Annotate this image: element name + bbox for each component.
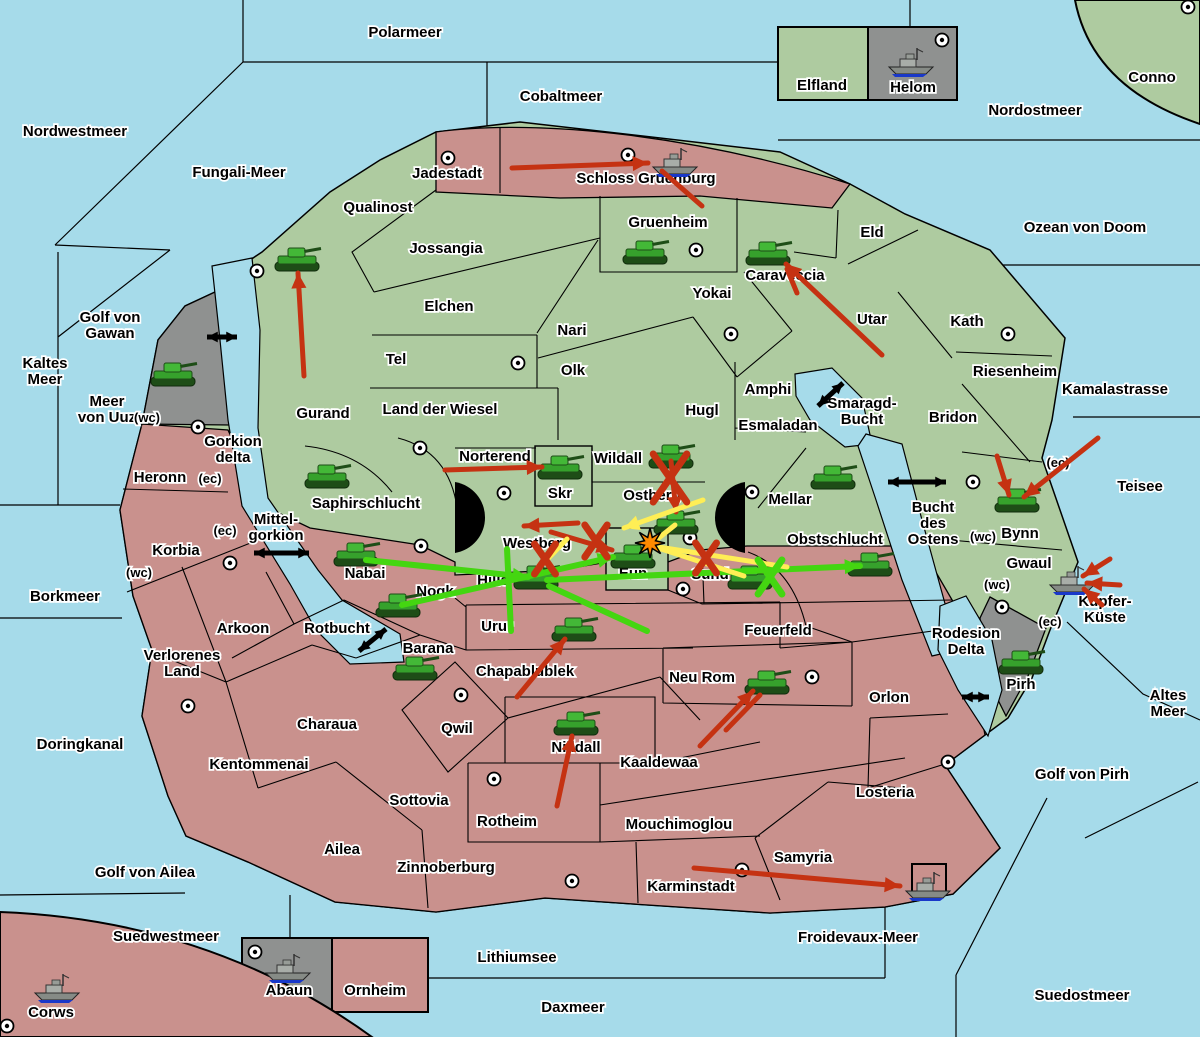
- sea-label-mittel-gorkion: Mittel-gorkion: [249, 511, 304, 544]
- capital-dot: [1182, 1, 1195, 14]
- capital-dot: [806, 671, 819, 684]
- territory-label-abaun[interactable]: Abaun: [266, 982, 313, 999]
- sea-label-kamalastrasse: Kamalastrasse: [1062, 381, 1168, 398]
- territory-label-land-der-wiesel[interactable]: Land der Wiesel: [383, 401, 498, 418]
- capital-dot: [690, 244, 703, 257]
- territory-label-ornheim[interactable]: Ornheim: [344, 982, 406, 999]
- sea-label-rotbucht: Rotbucht: [304, 620, 370, 637]
- territory-label-olk[interactable]: Olk: [561, 362, 586, 379]
- sea-label-fungali-meer: Fungali-Meer: [192, 164, 286, 181]
- sea-label-doringkanal: Doringkanal: [37, 736, 124, 753]
- territory-label-qualinost[interactable]: Qualinost: [343, 199, 412, 216]
- sea-label-polarmeer: Polarmeer: [368, 24, 442, 41]
- territory-label-mouchimoglou[interactable]: Mouchimoglou: [626, 816, 733, 833]
- territory-label-kath[interactable]: Kath: [950, 313, 983, 330]
- territory-label-mellar[interactable]: Mellar: [768, 491, 812, 508]
- territory-label-arkoon[interactable]: Arkoon: [217, 620, 270, 637]
- territory-label-nilldall[interactable]: Nilldall: [551, 739, 600, 756]
- territory-label-barana[interactable]: Barana: [403, 640, 455, 657]
- explosion-icon: [635, 528, 665, 558]
- sea-label-lithiumsee: Lithiumsee: [477, 949, 556, 966]
- zone-marker-ec: (ec): [1038, 614, 1061, 629]
- territory-label-hugl[interactable]: Hugl: [685, 402, 718, 419]
- territory-label-jossangia[interactable]: Jossangia: [409, 240, 483, 257]
- sea-label-suedostmeer: Suedostmeer: [1034, 987, 1129, 1004]
- zone-marker-ec: (ec): [198, 471, 221, 486]
- territory-label-charaua[interactable]: Charaua: [297, 716, 358, 733]
- territory-label-wildall[interactable]: Wildall: [594, 450, 642, 467]
- capital-dot: [942, 756, 955, 769]
- territory-label-amphi[interactable]: Amphi: [745, 381, 792, 398]
- capital-dot: [442, 152, 455, 165]
- capital-dot: [996, 601, 1009, 614]
- capital-dot: [677, 583, 690, 596]
- capital-dot: [746, 486, 759, 499]
- territory-label-elchen[interactable]: Elchen: [424, 298, 473, 315]
- territory-label-conno[interactable]: Conno: [1128, 69, 1175, 86]
- sea-label-suedwestmeer: Suedwestmeer: [113, 928, 219, 945]
- territory-label-bridon[interactable]: Bridon: [929, 409, 977, 426]
- territory-label-utar[interactable]: Utar: [857, 311, 887, 328]
- zone-marker-wc: (wc): [984, 577, 1010, 592]
- territory-label-elfland[interactable]: Elfland: [797, 77, 847, 94]
- territory-label-nari[interactable]: Nari: [557, 322, 586, 339]
- sea-label-golf-von-pirh: Golf von Pirh: [1035, 766, 1129, 783]
- capital-dot: [936, 34, 949, 47]
- territory-label-chapablublek[interactable]: Chapablublek: [476, 663, 575, 680]
- territory-label-pirh[interactable]: Pirh: [1006, 676, 1035, 693]
- sea-label-teisee: Teisee: [1117, 478, 1163, 495]
- territory-label-sottovia[interactable]: Sottovia: [389, 792, 449, 809]
- capital-dot: [566, 875, 579, 888]
- territory-label-heronn[interactable]: Heronn: [134, 469, 187, 486]
- territory-label-qwil[interactable]: Qwil: [441, 720, 473, 737]
- territory-label-schloss-gruenburg[interactable]: Schloss Gruenburg: [576, 170, 715, 187]
- zone-marker-ec: (ec): [213, 523, 236, 538]
- sea-label-nordostmeer: Nordostmeer: [988, 102, 1082, 119]
- sea-label-kaltes-meer: KaltesMeer: [22, 355, 67, 388]
- territory-label-orlon[interactable]: Orlon: [869, 689, 909, 706]
- zone-marker-wc: (wc): [970, 529, 996, 544]
- capital-dot: [182, 700, 195, 713]
- territory-label-bynn[interactable]: Bynn: [1001, 525, 1039, 542]
- territory-label-eld[interactable]: Eld: [860, 224, 883, 241]
- territory-label-rotheim[interactable]: Rotheim: [477, 813, 537, 830]
- capital-dot: [498, 487, 511, 500]
- territory-label-neu-rom[interactable]: Neu Rom: [669, 669, 735, 686]
- game-map: NordwestmeerPolarmeerCobaltmeerFungali-M…: [0, 0, 1200, 1037]
- territory-label-corws[interactable]: Corws: [28, 1004, 74, 1021]
- capital-dot: [1002, 328, 1015, 341]
- region-ornheim: [332, 938, 428, 1012]
- territory-label-karminstadt[interactable]: Karminstadt: [647, 878, 735, 895]
- territory-label-norterend[interactable]: Norterend: [459, 448, 531, 465]
- territory-label-kentommenai[interactable]: Kentommenai: [209, 756, 308, 773]
- territory-label-korbia[interactable]: Korbia: [152, 542, 200, 559]
- territory-label-helom[interactable]: Helom: [890, 79, 936, 96]
- territory-label-samyria[interactable]: Samyria: [774, 849, 833, 866]
- capital-dot: [488, 773, 501, 786]
- capital-dot: [455, 689, 468, 702]
- territory-label-saphirschlucht[interactable]: Saphirschlucht: [312, 495, 420, 512]
- territory-label-riesenheim[interactable]: Riesenheim: [973, 363, 1057, 380]
- territory-label-nabai[interactable]: Nabai: [345, 565, 386, 582]
- capital-dot: [251, 265, 264, 278]
- capital-dot: [725, 328, 738, 341]
- sea-label-golf-von-ailea: Golf von Ailea: [95, 864, 196, 881]
- capital-dot: [414, 442, 427, 455]
- territory-label-obstschlucht[interactable]: Obstschlucht: [787, 531, 883, 548]
- sea-label-froidevaux-meer: Froidevaux-Meer: [798, 929, 918, 946]
- territory-label-yokai[interactable]: Yokai: [693, 285, 732, 302]
- territory-label-esmaladan[interactable]: Esmaladan: [738, 417, 817, 434]
- capital-dot: [1, 1020, 14, 1033]
- territory-label-losteria[interactable]: Losteria: [856, 784, 915, 801]
- capital-dot: [415, 540, 428, 553]
- capital-dot: [512, 357, 525, 370]
- sea-label-daxmeer: Daxmeer: [541, 999, 605, 1016]
- sea-label-nordwestmeer: Nordwestmeer: [23, 123, 127, 140]
- sea-label-golf-von-gawan: Golf vonGawan: [80, 309, 141, 342]
- territory-label-gruenheim[interactable]: Gruenheim: [628, 214, 707, 231]
- territory-label-skr[interactable]: Skr: [548, 485, 572, 502]
- sea-label-kupfer-k-ste: Kupfer-Küste: [1078, 593, 1131, 626]
- territory-label-zinnoberburg[interactable]: Zinnoberburg: [397, 859, 495, 876]
- territory-label-tel[interactable]: Tel: [386, 351, 407, 368]
- capital-dot: [192, 421, 205, 434]
- sea-label-cobaltmeer: Cobaltmeer: [520, 88, 603, 105]
- capital-dot: [249, 946, 262, 959]
- territory-label-gwaul[interactable]: Gwaul: [1006, 555, 1051, 572]
- sea-label-ozean-von-doom: Ozean von Doom: [1024, 219, 1147, 236]
- territory-label-ailea[interactable]: Ailea: [324, 841, 361, 858]
- capital-dot: [224, 557, 237, 570]
- territory-label-kaaldewaa[interactable]: Kaaldewaa: [620, 754, 698, 771]
- zone-marker-wc: (wc): [134, 410, 160, 425]
- sea-label-altes-meer: AltesMeer: [1150, 687, 1187, 720]
- sea-label-borkmeer: Borkmeer: [30, 588, 100, 605]
- capital-dot: [622, 149, 635, 162]
- territory-label-gurand[interactable]: Gurand: [296, 405, 349, 422]
- capital-dot: [967, 476, 980, 489]
- territory-label-jadestadt[interactable]: Jadestadt: [412, 165, 482, 182]
- zone-marker-wc: (wc): [126, 565, 152, 580]
- attack-arrow-green: [507, 549, 511, 631]
- territory-label-feuerfeld[interactable]: Feuerfeld: [744, 622, 812, 639]
